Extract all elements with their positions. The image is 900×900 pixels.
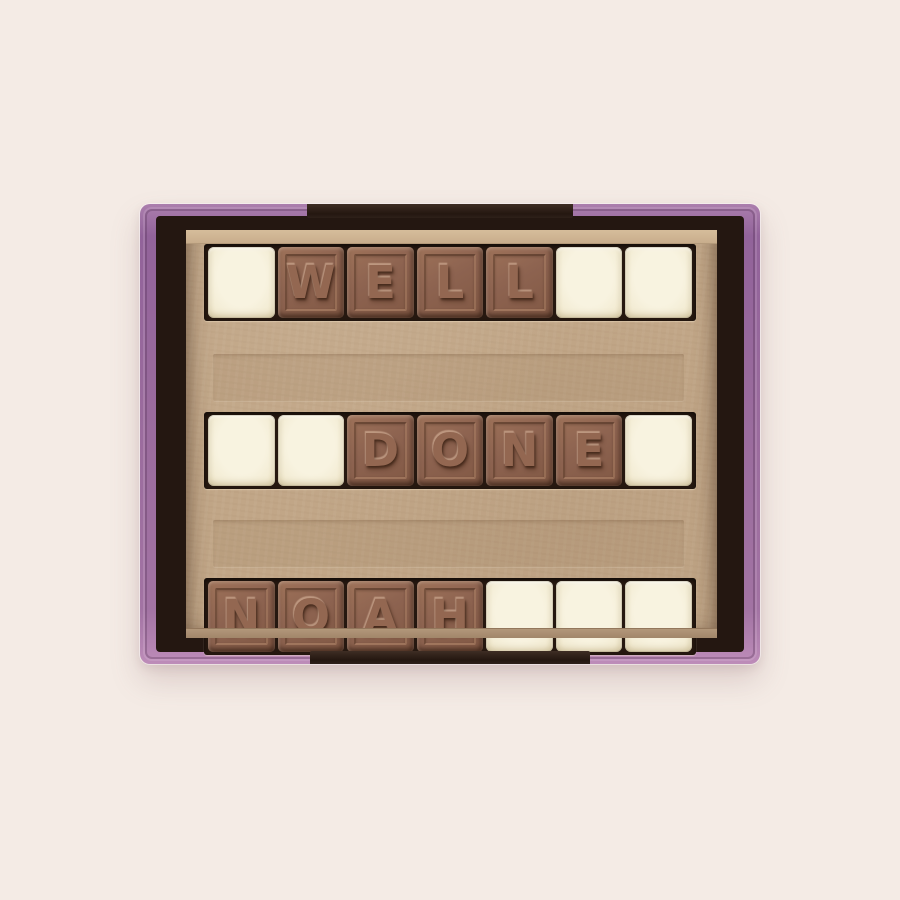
- white-chocolate-square: [208, 247, 275, 318]
- embossed-letter: A: [347, 581, 414, 652]
- kraft-card-insert: W E L L D O N E: [186, 230, 717, 638]
- embossed-letter: N: [486, 415, 553, 486]
- chocolate-gift-box: W E L L D O N E: [140, 204, 760, 664]
- milk-chocolate-letter-square: W: [278, 247, 345, 318]
- embossed-letter: L: [417, 247, 484, 318]
- embossed-letter: H: [417, 581, 484, 652]
- white-chocolate-square: [625, 581, 692, 652]
- embossed-letter: O: [278, 581, 345, 652]
- white-chocolate-square: [486, 581, 553, 652]
- empty-slot-recess-2: [213, 520, 684, 568]
- milk-chocolate-letter-square: L: [486, 247, 553, 318]
- chocolate-row-slot-1: W E L L: [204, 244, 696, 321]
- milk-chocolate-letter-square: E: [556, 415, 623, 486]
- white-chocolate-square: [556, 581, 623, 652]
- embossed-letter: O: [417, 415, 484, 486]
- milk-chocolate-letter-square: O: [417, 415, 484, 486]
- milk-chocolate-letter-square: O: [278, 581, 345, 652]
- milk-chocolate-letter-square: D: [347, 415, 414, 486]
- white-chocolate-square: [625, 415, 692, 486]
- white-chocolate-square: [625, 247, 692, 318]
- milk-chocolate-letter-square: H: [417, 581, 484, 652]
- milk-chocolate-letter-square: E: [347, 247, 414, 318]
- embossed-letter: E: [556, 415, 623, 486]
- milk-chocolate-letter-square: N: [486, 415, 553, 486]
- milk-chocolate-letter-square: L: [417, 247, 484, 318]
- embossed-letter: N: [208, 581, 275, 652]
- embossed-letter: D: [347, 415, 414, 486]
- box-rim-dark-accent-top: [307, 204, 573, 218]
- milk-chocolate-letter-square: N: [208, 581, 275, 652]
- box-rim-dark-accent-bottom: [310, 651, 590, 664]
- white-chocolate-square: [208, 415, 275, 486]
- white-chocolate-square: [556, 247, 623, 318]
- chocolate-row-slot-3: N O A H: [204, 578, 696, 655]
- box-inner-cavity: W E L L D O N E: [156, 216, 744, 652]
- milk-chocolate-letter-square: A: [347, 581, 414, 652]
- embossed-letter: L: [486, 247, 553, 318]
- chocolate-row-slot-2: D O N E: [204, 412, 696, 489]
- embossed-letter: E: [347, 247, 414, 318]
- embossed-letter: W: [278, 247, 345, 318]
- empty-slot-recess-1: [213, 354, 684, 402]
- white-chocolate-square: [278, 415, 345, 486]
- photo-background: W E L L D O N E: [0, 0, 900, 900]
